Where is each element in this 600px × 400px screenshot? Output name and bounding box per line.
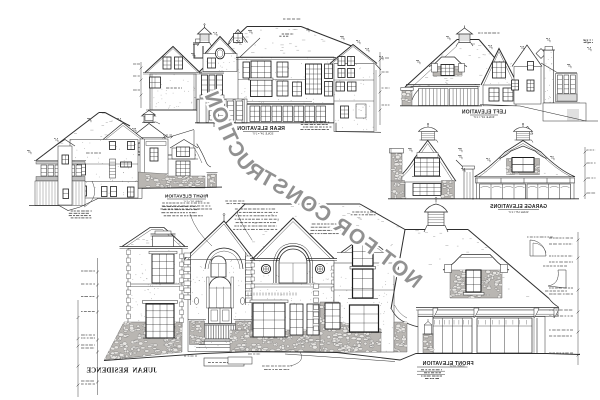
svg-text:SCALE: 1/4" = 1'-0": SCALE: 1/4" = 1'-0" [252, 133, 273, 136]
svg-text:SCALE: 1/8" = 1'-0": SCALE: 1/8" = 1'-0" [508, 211, 528, 214]
svg-text:RIGHT ELEVATION: RIGHT ELEVATION [164, 194, 208, 199]
svg-text:JURAN RESIDENCE: JURAN RESIDENCE [86, 366, 157, 374]
svg-text:GARAGE ELEVATIONS: GARAGE ELEVATIONS [489, 204, 547, 210]
svg-text:SCALE: 1/4" = 1'-0": SCALE: 1/4" = 1'-0" [473, 116, 494, 119]
svg-text:FRONT ELEVATION: FRONT ELEVATION [422, 361, 473, 367]
svg-text:LEFT ELEVATION: LEFT ELEVATION [462, 110, 507, 116]
svg-text:SCALE: 1/4"=1': SCALE: 1/4"=1' [449, 365, 465, 368]
svg-text:REAR ELEVATION: REAR ELEVATION [237, 126, 285, 132]
svg-text:SCALE: 1/4" = 1'-0": SCALE: 1/4" = 1'-0" [183, 200, 202, 203]
